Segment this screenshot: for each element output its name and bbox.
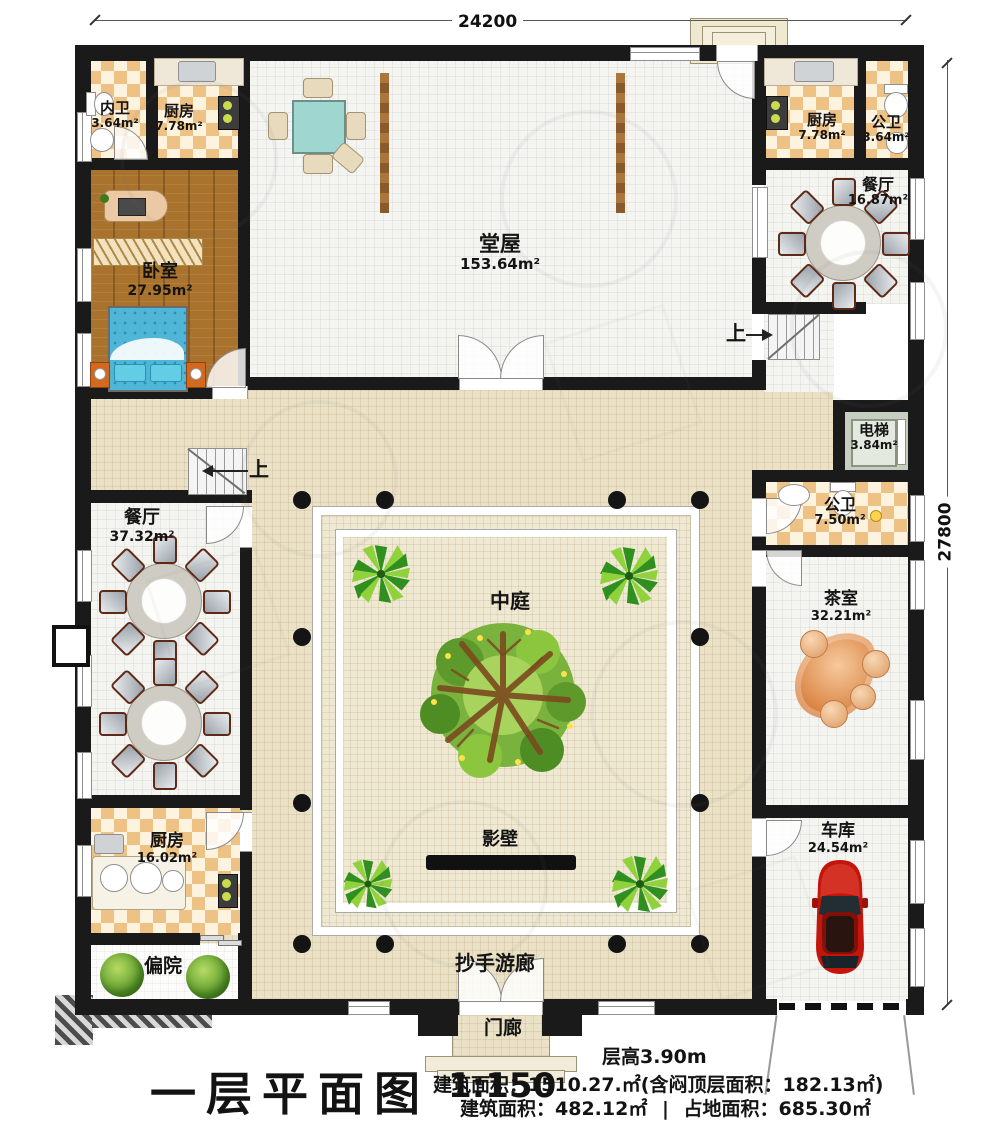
window [630, 47, 700, 61]
sliding-door [218, 940, 242, 946]
column [608, 935, 626, 953]
room-label-bedroom: 卧室27.95m² [127, 262, 192, 299]
window [910, 178, 925, 240]
burner [222, 892, 231, 901]
stairs-up-label: 上 [249, 458, 269, 481]
column [691, 491, 709, 509]
window [598, 1001, 655, 1015]
room-label-elevator: 电梯3.84m² [850, 422, 897, 453]
room-label-kitchen-b: 厨房16.02m² [137, 832, 197, 866]
yard-tree [100, 953, 144, 997]
wall [752, 805, 924, 818]
kitchen-sink [794, 61, 834, 82]
column [691, 628, 709, 646]
room-label-wc-tr: 公卫3.64m² [862, 114, 909, 145]
stairs-arrowhead [202, 465, 213, 477]
column [293, 491, 311, 509]
wall [245, 377, 459, 390]
window [348, 1001, 390, 1015]
burner [771, 101, 780, 110]
window [77, 550, 92, 602]
burner [222, 879, 231, 888]
window [910, 700, 925, 760]
wall [906, 999, 924, 1015]
porch-column [542, 1008, 582, 1036]
driveway-line [903, 1015, 915, 1095]
palm-bush [610, 854, 670, 914]
window [77, 248, 92, 302]
chair [303, 154, 333, 174]
bay-box [52, 625, 90, 667]
burner [223, 114, 232, 123]
room-label-hall: 堂屋153.64m² [460, 232, 540, 273]
room-label-veranda: 抄手游廊 [455, 952, 535, 975]
column [376, 491, 394, 509]
room-label-side-yard: 偏院 [144, 956, 182, 978]
burner [771, 114, 780, 123]
wall [240, 548, 252, 810]
palm-bush [342, 858, 394, 910]
basin [100, 864, 128, 892]
wall [752, 482, 766, 498]
column [376, 935, 394, 953]
garage-door [779, 1003, 906, 1010]
window [77, 845, 92, 897]
floor-height: 层高3.90m [602, 1042, 707, 1069]
yard-tree [186, 955, 230, 999]
door-opening [716, 45, 758, 61]
room-label-kitchen-tr: 厨房7.78m² [798, 112, 845, 143]
chair [303, 78, 333, 98]
room-label-courtyard: 中庭 [490, 590, 530, 613]
window [910, 928, 925, 987]
stool [862, 650, 890, 678]
chair [268, 112, 288, 140]
wall [752, 470, 924, 482]
wall [75, 933, 200, 945]
sink [90, 128, 114, 152]
door-opening [752, 818, 766, 857]
room-label-neiwei: 内卫3.64m² [91, 100, 138, 131]
wood-screen [616, 73, 625, 213]
room-label-garage: 车库24.54m² [808, 822, 868, 856]
room-label-dining-r: 餐厅16.87m² [848, 176, 908, 209]
window [910, 282, 925, 340]
palm-bush [350, 543, 412, 605]
wall [541, 377, 756, 390]
window [752, 187, 768, 258]
floor-drain [870, 510, 882, 522]
stairs-arrow [212, 470, 248, 472]
kitchen-sink [94, 834, 124, 854]
room-label-tea: 茶室32.21m² [811, 590, 871, 624]
stool [820, 700, 848, 728]
screen-wall-bar [426, 855, 576, 870]
wall [752, 585, 766, 818]
lamp [190, 368, 202, 380]
wall [752, 158, 924, 170]
basin [162, 870, 184, 892]
room-label-dining-l: 餐厅37.32m² [109, 508, 174, 545]
column [293, 794, 311, 812]
area-line-2: 建筑面积：482.12㎡ | 占地面积：685.30㎡ [460, 1094, 871, 1121]
car [810, 858, 870, 976]
porch-column [418, 1008, 458, 1036]
computer [118, 198, 146, 216]
chair [346, 112, 366, 140]
door-opening [752, 550, 766, 587]
column [608, 491, 626, 509]
wall [833, 400, 924, 412]
column [691, 794, 709, 812]
stairs-arrowhead [762, 329, 773, 341]
window [77, 752, 92, 799]
wood-screen [380, 73, 389, 213]
room-label-porch: 门廊 [484, 1018, 522, 1040]
column [293, 628, 311, 646]
plan-title: 一层平面图 [150, 1058, 430, 1121]
window [910, 560, 925, 610]
door-opening [752, 498, 766, 537]
window [910, 840, 925, 904]
room-label-wc-mid: 公卫7.50m² [814, 496, 865, 529]
elevator-rail [897, 419, 906, 465]
wall [752, 855, 766, 999]
stairs-up-label: 上 [726, 322, 746, 345]
column [293, 935, 311, 953]
top-dimension-value: 24200 [452, 12, 523, 32]
area-total: 建筑面积：482.12㎡ [460, 1098, 647, 1120]
stool [850, 684, 876, 710]
wall [75, 158, 250, 170]
area-line-1: 建筑面积：1510.27.㎡(含闷顶层面积：182.13㎡) [433, 1070, 883, 1097]
floor-plan-canvas: 24200 27800 [0, 0, 1000, 1121]
courtyard-tree [418, 610, 588, 780]
wall [833, 400, 845, 472]
lamp [94, 368, 106, 380]
pillow [114, 364, 146, 382]
area-footprint: 占地面积：685.30㎡ [684, 1098, 871, 1120]
kitchen-sink [178, 61, 216, 82]
desk-plant [100, 194, 109, 203]
stool [800, 630, 828, 658]
room-label-screen-wall: 影壁 [482, 830, 518, 851]
right-dimension-value: 27800 [936, 496, 956, 567]
pillow [150, 364, 182, 382]
column [691, 935, 709, 953]
basin [130, 862, 162, 894]
area-divider: | [662, 1098, 669, 1120]
corridor-floor [756, 390, 833, 470]
sink [778, 484, 810, 506]
window [910, 495, 925, 542]
burner [223, 101, 232, 110]
wall [75, 795, 252, 808]
hall-table [292, 100, 346, 154]
room-label-kitchen-tl: 厨房7.78m² [155, 103, 202, 134]
palm-bush [598, 545, 660, 607]
